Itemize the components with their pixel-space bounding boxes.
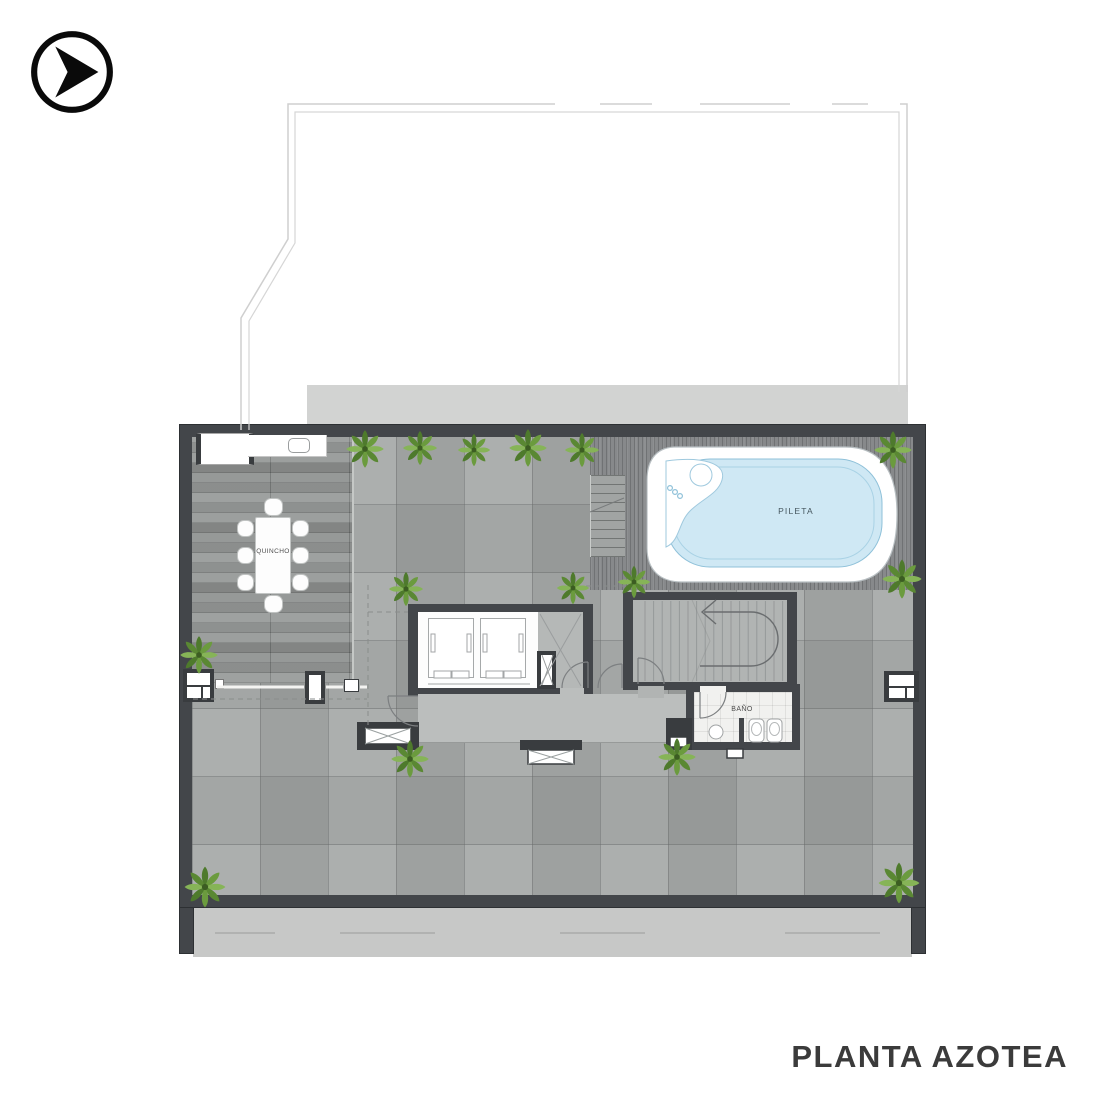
service-shaft xyxy=(537,651,556,689)
elevator-car xyxy=(480,618,526,678)
planter-nub xyxy=(215,679,224,689)
quincho-label: QUINCHO xyxy=(249,548,297,555)
vent-box xyxy=(666,718,692,750)
chair xyxy=(237,574,254,591)
elevator-block xyxy=(408,604,593,696)
vent-box xyxy=(520,740,582,750)
bathroom-room xyxy=(694,692,792,742)
planter-connector xyxy=(344,679,359,692)
stairwell-room xyxy=(633,600,787,682)
floorplan-page: QUINCHO PILETA BAÑO PLANTA AZOTEA xyxy=(0,0,1100,1100)
pool-wood-deck xyxy=(590,437,913,590)
arrow-play-logo-icon xyxy=(28,28,116,116)
wall-extension-right xyxy=(912,907,925,953)
pool-label: PILETA xyxy=(760,506,832,516)
elevator-car xyxy=(428,618,474,678)
floor-plan xyxy=(180,425,925,907)
chair xyxy=(237,520,254,537)
wall-extension-left xyxy=(180,907,193,953)
page-title: PLANTA AZOTEA xyxy=(791,1039,1068,1075)
chair xyxy=(264,595,283,613)
planter-column xyxy=(305,671,325,704)
bathroom-door-gap xyxy=(700,686,726,694)
chair xyxy=(292,574,309,591)
vestibule-door-gap xyxy=(560,688,584,698)
stairwell-block xyxy=(623,592,797,690)
sidewalk-band-bottom xyxy=(193,907,912,957)
chair xyxy=(264,498,283,516)
brand-logo xyxy=(28,28,116,116)
neighbor-roof-band-top xyxy=(307,385,908,425)
vent-box xyxy=(357,722,419,750)
bathroom-label: BAÑO xyxy=(714,706,770,713)
quincho-table xyxy=(255,517,291,594)
quincho-counter xyxy=(248,435,327,457)
counter-sink xyxy=(288,438,310,453)
service-box-left xyxy=(183,669,214,702)
chair xyxy=(292,520,309,537)
corridor-slab xyxy=(418,694,686,743)
service-box-right xyxy=(884,671,919,702)
deck-steps xyxy=(590,475,625,557)
wall-opening xyxy=(196,433,254,465)
stairwell-door-gap xyxy=(638,686,664,698)
